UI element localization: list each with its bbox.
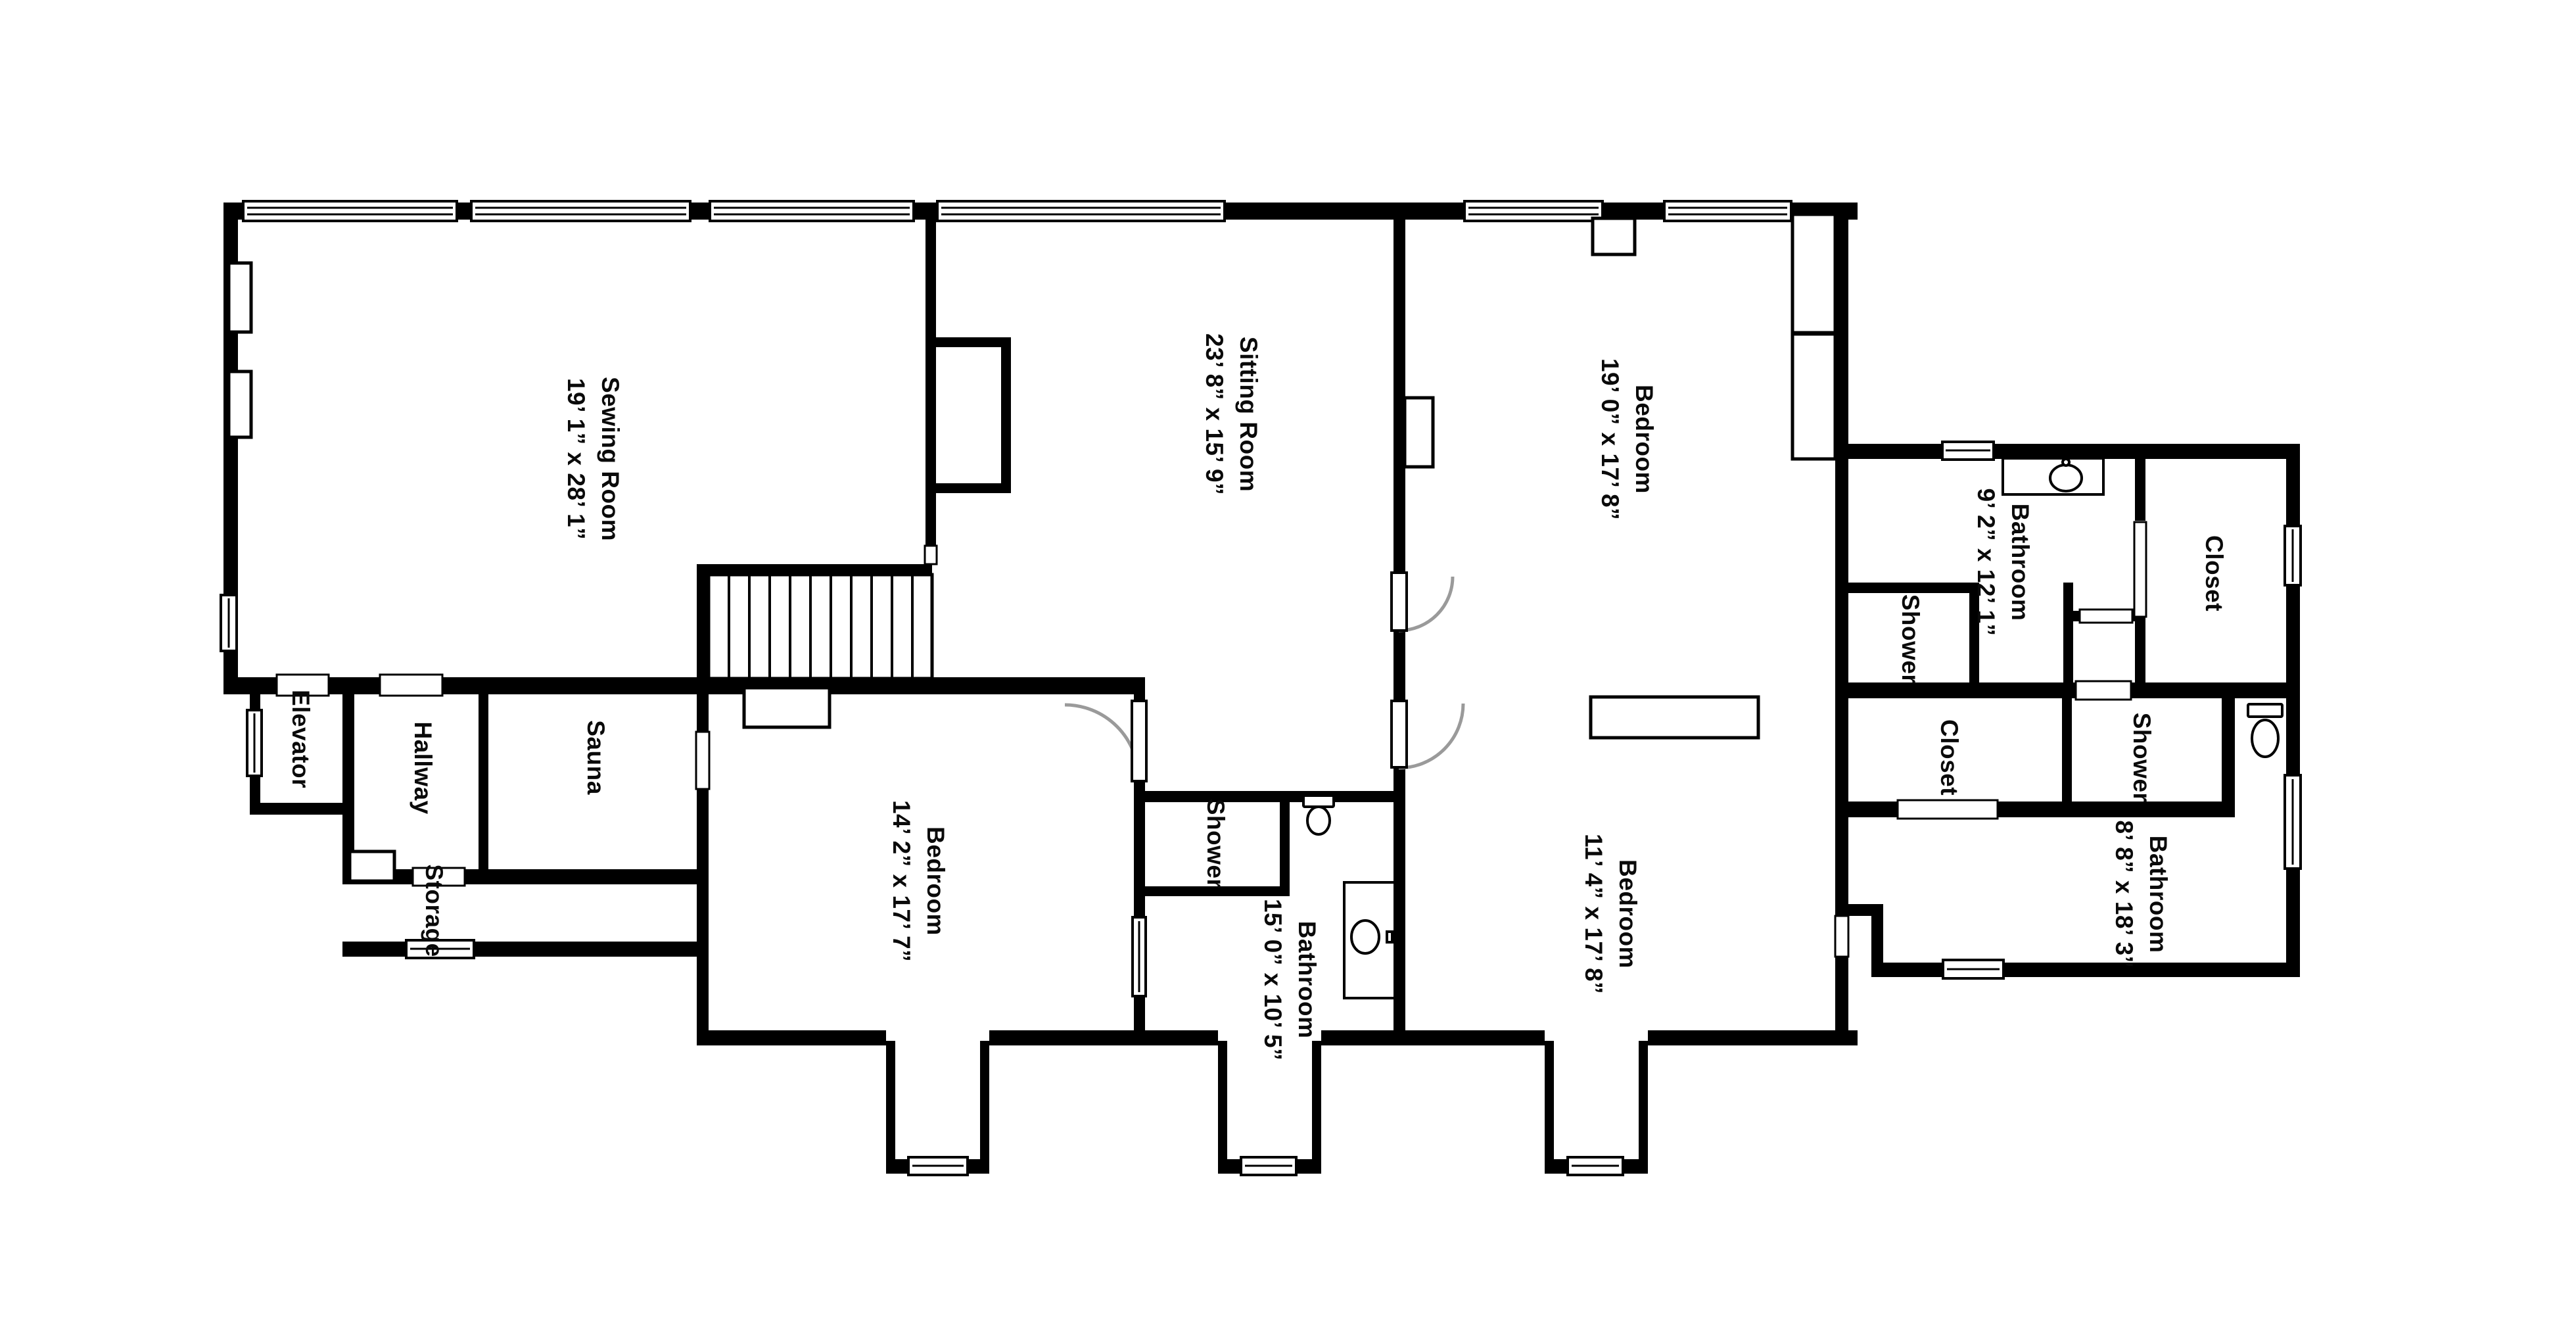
room-label-shower-top-right: Shower — [1897, 594, 1924, 684]
built-in-cabinet — [1792, 334, 1835, 459]
chimney-box — [1593, 218, 1635, 254]
room-label-storage: Storage — [421, 864, 448, 957]
door-arc — [1065, 705, 1138, 778]
room-name: Bedroom — [1614, 859, 1641, 969]
room-name: Bedroom — [922, 826, 949, 936]
built-in-cabinet — [1405, 398, 1433, 467]
sauna-doorway — [696, 732, 709, 789]
room-name: Shower — [1897, 594, 1924, 684]
room-name: Elevator — [287, 690, 314, 788]
bedroom-top-right-door — [1392, 573, 1407, 631]
room-dims: 9’ 2” x 12’ 1” — [1973, 488, 2000, 636]
window — [247, 710, 262, 776]
room-name: Closet — [1936, 719, 1963, 796]
sink-vanity-icon — [1344, 882, 1395, 998]
room-label-elevator: Elevator — [287, 690, 314, 788]
sink-vanity-icon — [2003, 458, 2103, 494]
room-label-bedroom-bottom-left: Bedroom 14’ 2” x 17’ 7” — [888, 800, 949, 962]
window — [908, 1157, 968, 1175]
room-name: Shower — [1202, 799, 1229, 889]
window — [937, 201, 1225, 221]
door-arc — [1399, 704, 1463, 768]
vestibule-doorway — [2080, 610, 2132, 623]
room-label-closet-top-right: Closet — [2201, 535, 2228, 611]
window — [1568, 1157, 1623, 1175]
window — [1943, 960, 2003, 978]
room-name: Bathroom — [2007, 504, 2034, 621]
sitting-room-passage — [925, 546, 937, 564]
toilet-icon — [2248, 704, 2282, 757]
room-name: Sitting Room — [1235, 337, 1262, 492]
room-dims: 19’ 1” x 28’ 1” — [563, 378, 590, 540]
window — [2285, 526, 2301, 585]
room-name: Bedroom — [1631, 385, 1658, 494]
window — [710, 201, 914, 221]
furniture-layer — [229, 214, 1835, 881]
staircase-icon — [709, 575, 932, 679]
toilet-icon — [1303, 796, 1334, 834]
window — [2285, 775, 2301, 869]
room-label-bathroom-middle: Bathroom 15’ 0” x 10’ 5” — [1259, 899, 1321, 1061]
window — [1942, 442, 1994, 460]
room-name: Sewing Room — [597, 377, 624, 541]
floor-plan-page: Sewing Room 19’ 1” x 28’ 1” Sitting Room… — [0, 0, 2576, 1340]
room-dims: 19’ 0” x 17’ 8” — [1597, 358, 1624, 520]
room-label-bathroom-bottom-right: Bathroom 8’ 8” x 18’ 3” — [2111, 820, 2172, 968]
built-in-cabinet — [744, 688, 830, 727]
room-label-sewing-room: Sewing Room 19’ 1” x 28’ 1” — [563, 377, 624, 541]
room-label-shower-middle: Shower — [1202, 799, 1229, 889]
built-in-cabinet — [229, 371, 251, 437]
room-dims: 8’ 8” x 18’ 3” — [2111, 820, 2138, 968]
room-name: Hallway — [410, 721, 436, 814]
window — [221, 595, 237, 651]
room-label-bathroom-top-right: Bathroom 9’ 2” x 12’ 1” — [1973, 488, 2034, 636]
room-dims: 11’ 4” x 17’ 8” — [1580, 834, 1607, 994]
right-wing-passage — [2076, 681, 2131, 700]
built-in-cabinet — [1591, 697, 1758, 738]
built-in-cabinet — [1792, 214, 1835, 333]
bedroom-bottom-left-door — [1132, 701, 1146, 781]
room-name: Closet — [2201, 535, 2228, 611]
closet-bottom-right-doorway — [1898, 800, 1998, 819]
room-label-sitting-room: Sitting Room 23’ 8” x 15’ 9” — [1201, 333, 1262, 495]
room-label-sauna: Sauna — [582, 720, 609, 795]
bedroom-bottom-right-door — [1392, 701, 1407, 767]
room-label-hallway: Hallway — [410, 721, 436, 814]
room-dims: 14’ 2” x 17’ 7” — [888, 800, 915, 962]
room-label-bedroom-bottom-right: Bedroom 11’ 4” x 17’ 8” — [1580, 834, 1641, 994]
window — [1133, 917, 1146, 996]
room-name: Storage — [421, 864, 448, 957]
room-name: Shower — [2128, 713, 2155, 803]
room-dims: 23’ 8” x 15’ 9” — [1201, 333, 1228, 495]
window — [1464, 201, 1603, 221]
closet-top-right-doorway — [2134, 522, 2146, 617]
room-name: Bathroom — [1294, 921, 1321, 1039]
floor-plan-drawing: Sewing Room 19’ 1” x 28’ 1” Sitting Room… — [0, 0, 2576, 1340]
window — [243, 201, 457, 221]
bathroom-bottom-right-doorway — [1835, 916, 1848, 957]
window — [471, 201, 690, 221]
hall-closet-box — [350, 851, 394, 881]
room-name: Bathroom — [2145, 836, 2172, 953]
window — [1664, 201, 1791, 221]
room-name: Sauna — [582, 720, 609, 795]
built-in-cabinet — [229, 263, 251, 332]
room-label-closet-bottom-right: Closet — [1936, 719, 1963, 796]
room-label-bedroom-top-right: Bedroom 19’ 0” x 17’ 8” — [1597, 358, 1658, 520]
room-dims: 15’ 0” x 10’ 5” — [1259, 899, 1286, 1061]
hallway-doorway — [380, 675, 442, 696]
window — [1241, 1157, 1296, 1175]
room-label-shower-bottom-right: Shower — [2128, 713, 2155, 803]
